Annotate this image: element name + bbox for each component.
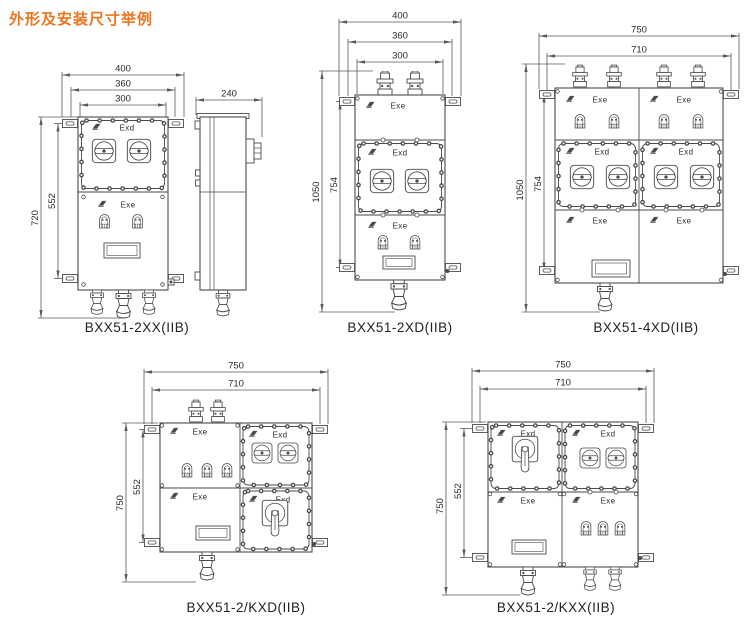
cover-screw <box>161 283 165 287</box>
cover-screw <box>236 424 240 428</box>
section-label: Exd <box>273 431 288 440</box>
flange-bolt <box>580 208 584 212</box>
socket-outlet-icon <box>182 464 192 478</box>
section-label: Exe <box>593 217 608 226</box>
flange-bolt <box>415 213 419 217</box>
flange-bolt <box>616 208 620 212</box>
cover-screw <box>441 275 445 279</box>
dim-label: 1050 <box>311 181 322 202</box>
cover-screw <box>82 195 86 199</box>
socket-outlet-icon <box>575 115 585 129</box>
cable-gland-icon <box>189 400 204 422</box>
dim-label: 1050 <box>515 179 526 200</box>
dim-label: 552 <box>47 193 58 209</box>
mounting-ear-icon <box>168 120 183 128</box>
nameplate <box>512 540 546 554</box>
nameplate <box>104 243 140 258</box>
dim-label: 710 <box>631 45 647 56</box>
diagram-bxx51-2xx: 400 360 300 720 552 <box>30 64 262 336</box>
dim-label: 360 <box>392 31 408 42</box>
socket-outlet-icon <box>410 236 420 250</box>
cover-screw <box>634 563 638 567</box>
dim-label: 710 <box>555 378 571 389</box>
mounting-ear-icon <box>144 426 159 434</box>
enclosure-side-view <box>195 114 261 316</box>
cable-gland-icon <box>691 65 706 87</box>
cable-gland-icon <box>391 280 407 310</box>
rotary-switch-icon <box>127 139 150 162</box>
cover-screw <box>558 563 562 567</box>
cable-gland-icon <box>407 71 423 95</box>
cable-gland-icon <box>377 71 393 95</box>
cable-gland-icon <box>584 567 597 590</box>
dim-label: 360 <box>115 79 131 90</box>
section-label: Exd <box>393 149 408 158</box>
cover-screw <box>556 278 560 282</box>
earth-terminal <box>168 279 174 285</box>
enclosure-front-view <box>160 423 312 552</box>
earth-terminal <box>723 272 727 276</box>
section-label: Exe <box>193 428 208 437</box>
cover-screw <box>488 563 492 567</box>
socket-outlet-icon <box>133 215 143 229</box>
dim-width-710 <box>152 387 320 424</box>
cover-screw <box>356 275 360 279</box>
section-label: Exe <box>393 222 408 231</box>
rotary-switch-icon <box>405 169 428 192</box>
dim-label: 300 <box>115 94 131 105</box>
dim-label: 710 <box>228 379 244 390</box>
section-label: Exe <box>391 102 406 111</box>
cover-screw <box>441 97 445 101</box>
socket-outlet-icon <box>609 115 619 129</box>
socket-outlet-icon <box>693 115 703 129</box>
section-label: Exe <box>677 96 692 105</box>
cable-gland-icon <box>598 283 613 311</box>
mounting-ear-icon <box>312 426 327 434</box>
diagram-bxx51-2kxx: 750 710 750 552 Exd <box>435 360 654 616</box>
flange-bolt <box>700 208 704 212</box>
dim-width-750 <box>472 368 654 423</box>
dim-label: 400 <box>115 64 131 75</box>
cover-screw <box>719 90 723 94</box>
cable-gland-icon <box>573 65 588 87</box>
mounting-ear-icon <box>723 91 738 99</box>
section-label: Exe <box>121 201 136 210</box>
mounting-ear-icon <box>62 120 77 128</box>
diagram-bxx51-2kxd: 750 710 750 552 Exe <box>115 361 328 616</box>
rotary-switch-icon <box>606 448 626 468</box>
diagram-caption: BXX51-2/KXX(IIB) <box>497 600 615 615</box>
cable-gland-icon <box>607 65 622 87</box>
dim-label: 300 <box>392 51 408 62</box>
socket-outlet-icon <box>598 522 608 536</box>
cover-screw <box>161 195 165 199</box>
dim-label: 552 <box>453 483 464 499</box>
rotary-switch-icon <box>606 165 629 188</box>
engineering-drawing-canvas: 400 360 300 720 552 <box>0 0 750 627</box>
rotary-switch-icon <box>252 443 272 463</box>
flange-bolt <box>664 208 668 212</box>
cable-gland-icon <box>609 567 622 590</box>
mounting-ear-icon <box>472 554 487 562</box>
mounting-ear-icon <box>62 275 77 283</box>
dim-label: 750 <box>115 495 126 511</box>
section-label: Exe <box>677 217 692 226</box>
socket-outlet-icon <box>581 522 591 536</box>
flange-bolt <box>415 138 419 142</box>
diagram-bxx51-4xd: 750 710 1050 754 Exe Exe <box>515 25 739 336</box>
section-label: Exe <box>193 493 208 502</box>
cover-screw <box>160 484 164 488</box>
mounting-ear-icon <box>445 98 460 106</box>
rotary-switch-icon <box>370 169 393 192</box>
rotary-switch-icon <box>278 443 298 463</box>
diagram-caption: BXX51-4XD(IIB) <box>593 320 698 335</box>
cover-screw <box>236 548 240 552</box>
socket-outlet-icon <box>615 522 625 536</box>
cover-screw <box>356 97 360 101</box>
dim-label: 750 <box>435 498 446 514</box>
flange-bolt <box>381 138 385 142</box>
cover-screw <box>634 492 638 496</box>
switch-shaft <box>246 139 254 163</box>
dim-width-360 <box>348 39 452 96</box>
cable-gland-icon <box>211 400 226 422</box>
dim-label: 750 <box>555 360 571 371</box>
cover-screw <box>562 492 566 496</box>
dim-label: 754 <box>533 176 544 192</box>
cover-screw <box>719 278 723 282</box>
mounting-ear-icon <box>539 91 554 99</box>
dim-label: 240 <box>221 89 237 100</box>
earth-terminal <box>638 556 642 560</box>
cover-screw <box>160 424 164 428</box>
mounting-ear-icon <box>144 539 159 547</box>
rotary-switch-icon <box>654 165 677 188</box>
cover-screw <box>236 484 240 488</box>
dim-label: 750 <box>631 25 647 36</box>
diagram-caption: BXX51-2XX(IIB) <box>85 320 190 335</box>
section-label: Exe <box>521 497 536 506</box>
socket-outlet-icon <box>659 115 669 129</box>
cable-gland-icon <box>200 552 215 580</box>
mounting-ear-icon <box>638 425 653 433</box>
nameplate <box>592 260 630 277</box>
cable-gland-icon <box>116 290 131 318</box>
mounting-ear-icon <box>539 267 554 275</box>
rotary-switch-icon <box>580 448 600 468</box>
dim-width-710 <box>480 386 646 423</box>
diagram-bxx51-2xd: 400 360 300 1050 754 Exe <box>311 11 461 336</box>
nameplate <box>196 526 230 540</box>
earth-terminal <box>312 542 316 546</box>
cover-screw <box>160 548 164 552</box>
cable-gland-icon <box>657 65 672 87</box>
cable-gland-icon <box>91 290 104 314</box>
cover-screw <box>558 492 562 496</box>
diagram-caption: BXX51-2/KXD(IIB) <box>186 600 305 615</box>
dim-width-750 <box>144 369 328 424</box>
section-label: Exd <box>679 148 694 157</box>
section-label: Exe <box>601 497 616 506</box>
dim-width-300 <box>357 59 443 94</box>
dim-width-750 <box>539 33 739 89</box>
rotary-switch-icon <box>92 139 115 162</box>
mounting-ear-icon <box>339 264 354 272</box>
earth-terminal <box>446 269 450 273</box>
nameplate <box>383 256 415 269</box>
dim-label: 552 <box>132 479 143 495</box>
socket-outlet-icon <box>378 236 388 250</box>
section-label: Exe <box>593 96 608 105</box>
section-label: Exd <box>595 148 610 157</box>
enclosure-front-view <box>355 95 445 280</box>
dim-label: 754 <box>329 177 340 193</box>
flange-bolt <box>614 490 618 494</box>
cover-screw <box>82 283 86 287</box>
cable-gland-icon <box>521 567 536 595</box>
catalog-dimensions-page: { "page": { "title": "外形及安装尺寸举例" }, "col… <box>0 0 750 627</box>
cable-gland-icon <box>216 290 230 316</box>
dim-label: 750 <box>228 361 244 372</box>
diagram-caption: BXX51-2XD(IIB) <box>347 320 452 335</box>
socket-outlet-icon <box>222 464 232 478</box>
cover-screw <box>488 492 492 496</box>
rotary-switch-icon <box>690 165 713 188</box>
flange-bolt <box>588 490 592 494</box>
socket-outlet-icon <box>202 464 212 478</box>
flange-bolt <box>381 213 385 217</box>
dim-label: 400 <box>392 11 408 22</box>
socket-outlet-icon <box>100 215 110 229</box>
cable-gland-icon <box>143 290 156 314</box>
rotary-switch-icon <box>570 165 593 188</box>
mounting-ear-icon <box>472 425 487 433</box>
dim-label: 720 <box>30 210 41 226</box>
cover-screw <box>556 90 560 94</box>
section-label: Exd <box>601 430 616 439</box>
mounting-ear-icon <box>339 98 354 106</box>
section-label: Exd <box>120 124 135 133</box>
cover-screw <box>562 563 566 567</box>
